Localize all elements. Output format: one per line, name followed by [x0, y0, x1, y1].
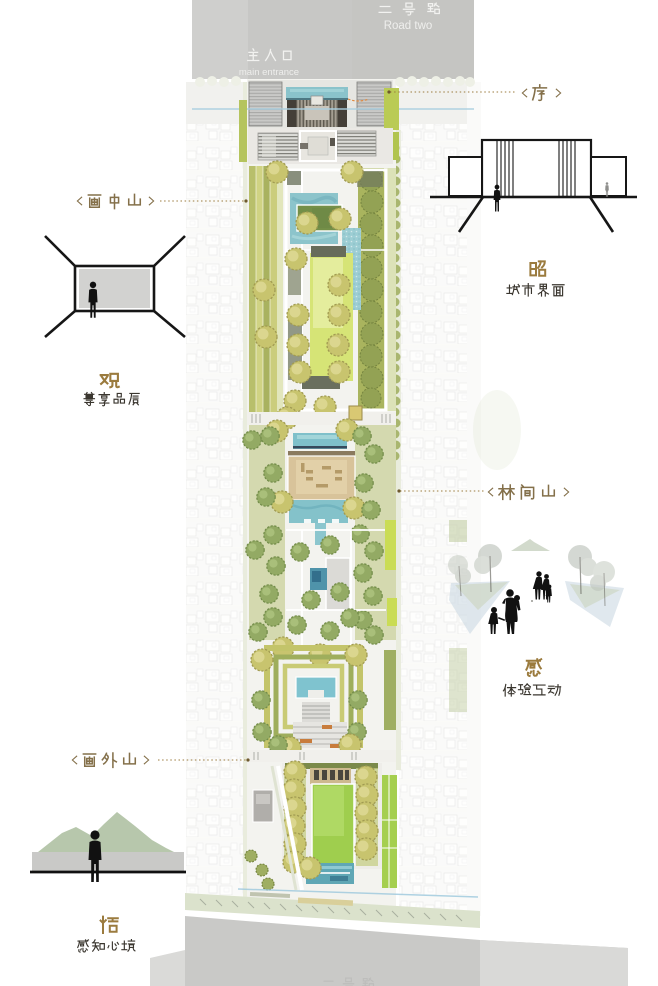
svg-text:Road two: Road two	[384, 20, 433, 32]
svg-text:main entrance: main entrance	[239, 67, 299, 78]
